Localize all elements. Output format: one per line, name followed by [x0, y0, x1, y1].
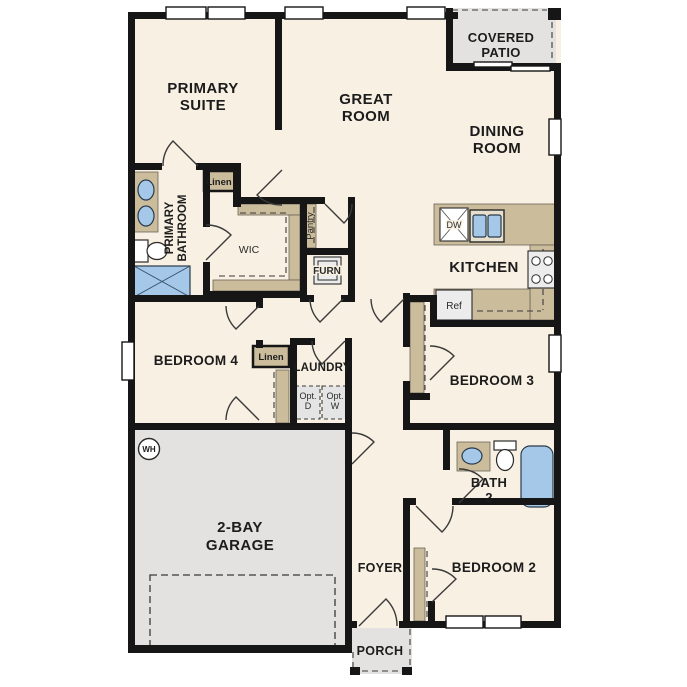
wic-shelf-top — [238, 204, 300, 215]
bedroom3-label: BEDROOM 3 — [450, 373, 535, 388]
primary-bath-sink-1 — [138, 180, 154, 200]
window-bedroom3 — [549, 335, 561, 372]
exterior-mask — [412, 628, 561, 687]
bath2-toilet-bowl — [497, 450, 514, 471]
primary-suite-label-2: SUITE — [180, 97, 226, 114]
floor-plan-page: PRIMARY SUITE GREAT ROOM COVERED PATIO D… — [0, 0, 687, 687]
wic-label: WIC — [239, 244, 260, 256]
opt-dryer-label-2: D — [305, 401, 312, 411]
bath2-sink — [462, 448, 482, 464]
furnace-label: FURN — [313, 266, 341, 277]
stove — [528, 251, 555, 288]
refrigerator-label: Ref — [446, 301, 462, 312]
bath2-label-2: 2 — [485, 490, 493, 505]
primary-suite-label-1: PRIMARY — [167, 80, 238, 97]
porch-label: PORCH — [357, 644, 404, 658]
opt-dryer-label-1: Opt. — [299, 391, 316, 401]
garage-label-2: GARAGE — [206, 537, 274, 554]
pantry-label: Pantry — [305, 212, 316, 240]
wic-shelf-bottom — [213, 280, 300, 291]
window-primary-suite-2 — [208, 7, 245, 19]
dining-room-label-1: DINING — [470, 123, 525, 140]
svg-text:PRIMARY: PRIMARY — [164, 201, 176, 254]
foyer-label: FOYER — [358, 561, 403, 575]
patio-sliding-door-panel-2 — [511, 66, 550, 71]
linen-hall-label: Linen — [206, 177, 232, 188]
window-bedroom4 — [122, 342, 134, 380]
window-dining-room — [549, 119, 561, 155]
bath2-tub — [521, 446, 553, 507]
bath2-toilet-tank — [494, 441, 516, 450]
linen-bedroom4-label: Linen — [258, 352, 284, 363]
window-bedroom2-1 — [446, 616, 483, 628]
primary-shower — [134, 266, 190, 297]
bedroom2-label: BEDROOM 2 — [452, 560, 536, 575]
floor-plan-drawing: PRIMARY SUITE GREAT ROOM COVERED PATIO D… — [0, 0, 687, 687]
dining-room-label-2: ROOM — [473, 140, 521, 157]
kitchen-sink — [470, 210, 504, 242]
primary-bath-sink-2 — [138, 206, 154, 226]
bath2-label-1: BATH — [471, 475, 507, 490]
patio-sliding-door-panel-1 — [474, 62, 512, 67]
great-room-label-1: GREAT — [339, 91, 392, 108]
covered-patio-label-2: PATIO — [481, 45, 520, 60]
dishwasher-label: DW — [447, 220, 462, 230]
laundry-label: LAUNDRY — [293, 362, 350, 374]
kitchen-label: KITCHEN — [449, 259, 518, 276]
svg-text:BATHROOM: BATHROOM — [177, 195, 189, 262]
wic-shelf-right — [289, 215, 300, 280]
primary-bathroom-label: PRIMARY BATHROOM — [164, 195, 189, 262]
bedroom4-closet-shelf — [276, 370, 289, 423]
garage-label-1: 2-BAY — [217, 519, 263, 536]
window-primary-suite-1 — [166, 7, 206, 19]
great-room-label-2: ROOM — [342, 108, 390, 125]
bedroom4-label: BEDROOM 4 — [154, 353, 239, 368]
window-top-right — [407, 7, 445, 19]
opt-washer-label-2: W — [331, 401, 340, 411]
primary-toilet-tank — [134, 240, 148, 262]
covered-patio-label-1: COVERED — [468, 30, 534, 45]
water-heater-label: WH — [142, 445, 156, 454]
window-bedroom2-2 — [485, 616, 521, 628]
bedroom3-closet-shelf — [410, 302, 424, 393]
bedroom2-closet-shelf — [414, 548, 425, 621]
window-great-room — [285, 7, 323, 19]
opt-washer-label-1: Opt. — [326, 391, 343, 401]
